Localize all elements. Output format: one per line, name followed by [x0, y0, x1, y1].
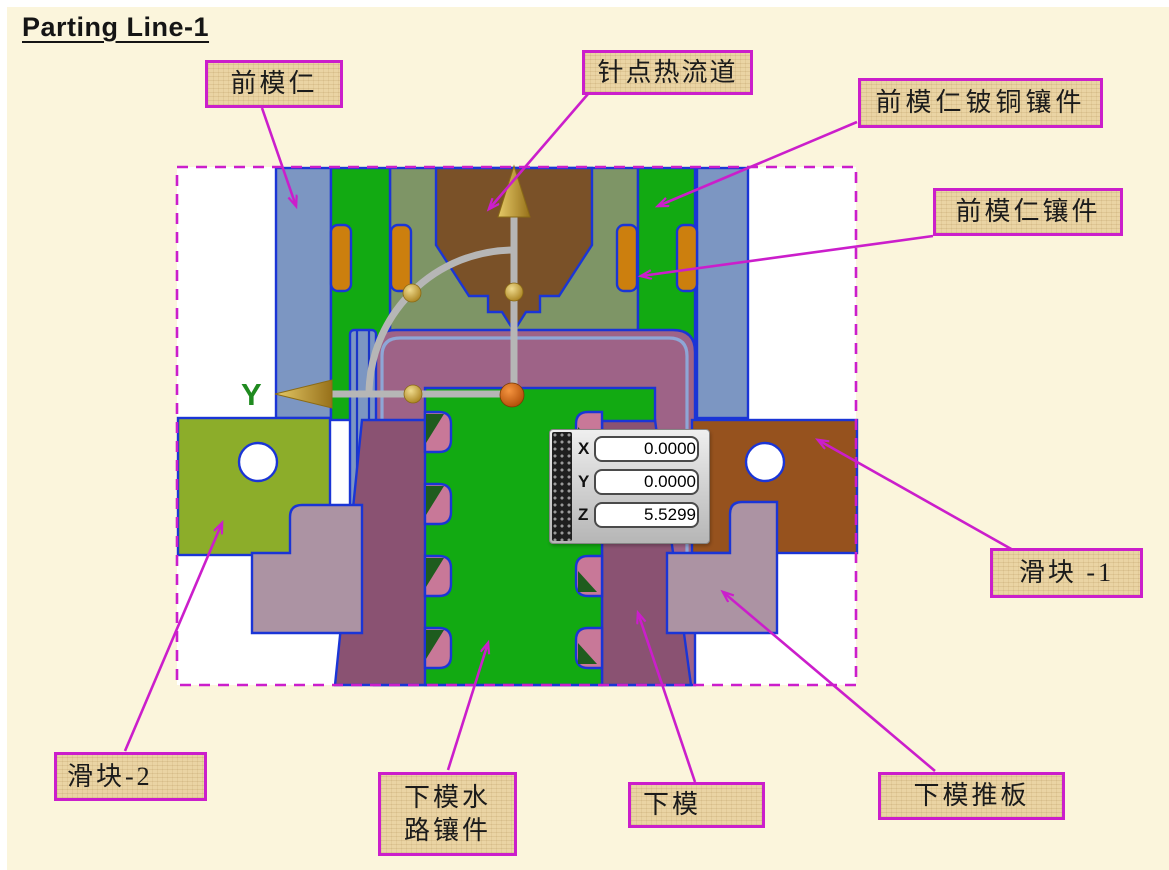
callout-lower-mold: 下模 — [628, 782, 765, 828]
part-front-mold-core-right — [697, 168, 748, 418]
callout-front-mold-core: 前模仁 — [205, 60, 343, 108]
callout-pinpoint-hot-runner: 针点热流道 — [582, 50, 753, 95]
part-front-mold-core-left — [276, 168, 331, 418]
coordinate-x-field[interactable]: 0.0000 — [594, 436, 699, 462]
callout-lower-mold-ejector-plate: 下模推板 — [878, 772, 1065, 820]
coordinate-row-y: Y 0.0000 — [578, 469, 705, 495]
part-oring-seal — [617, 225, 637, 291]
callout-slider-1: 滑块 -1 — [990, 548, 1143, 598]
callout-front-core-insert: 前模仁镶件 — [933, 188, 1123, 236]
callout-label: 前模仁镶件 — [955, 195, 1100, 228]
part-oring-seal — [677, 225, 697, 291]
triad-y-handle[interactable] — [404, 385, 422, 403]
callout-label: 下模推板 — [913, 779, 1029, 812]
coordinate-z-field[interactable]: 5.5299 — [594, 502, 699, 528]
part-oring-seal — [331, 225, 351, 291]
coordinate-panel-grip[interactable] — [552, 432, 572, 541]
part-slider-2-hole — [239, 443, 277, 481]
callout-slider-2: 滑块-2 — [54, 752, 207, 801]
callout-label: 滑块-2 — [67, 760, 153, 793]
axis-z-label: Z — [578, 505, 594, 525]
coordinate-row-z: Z 5.5299 — [578, 502, 705, 528]
callout-label: 针点热流道 — [597, 56, 737, 89]
coordinate-panel[interactable]: X 0.0000 Y 0.0000 Z 5.5299 — [549, 429, 710, 544]
axis-x-label: X — [578, 439, 594, 459]
triad-arc-handle[interactable] — [403, 284, 421, 302]
axis-label-y: Y — [241, 377, 262, 412]
callout-label: 下模 — [643, 788, 701, 821]
part-slider-1-hole — [746, 443, 784, 481]
callout-front-core-becu-insert: 前模仁铍铜镶件 — [858, 78, 1103, 128]
axis-y-label: Y — [578, 472, 594, 492]
callout-label: 下模水路镶件 — [402, 781, 494, 848]
callout-label: 前模仁铍铜镶件 — [875, 86, 1085, 119]
callout-label: 前模仁 — [230, 67, 317, 100]
coordinate-y-field[interactable]: 0.0000 — [594, 469, 699, 495]
callout-lower-mold-water-insert: 下模水路镶件 — [378, 772, 517, 856]
triad-origin-handle[interactable] — [500, 383, 524, 407]
triad-z-handle[interactable] — [505, 283, 523, 301]
part-oring-seal — [391, 225, 411, 291]
coordinate-row-x: X 0.0000 — [578, 436, 705, 462]
callout-label: 滑块 -1 — [1019, 556, 1114, 589]
